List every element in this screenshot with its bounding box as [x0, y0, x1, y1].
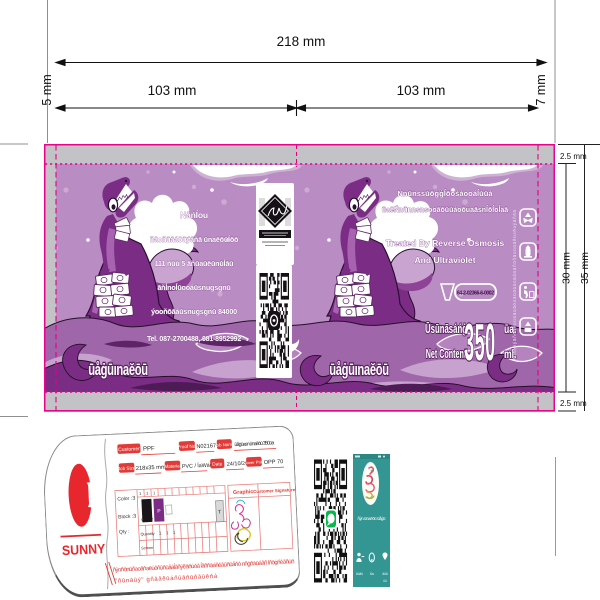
svg-text:And Ultraviolet: And Ultraviolet: [414, 255, 475, 265]
svg-text:SUNNY: SUNNY: [62, 541, 106, 559]
svg-text:1: 1: [146, 491, 149, 496]
svg-text:5 mm: 5 mm: [40, 74, 54, 105]
svg-text:64-2-02366-6-0002: 64-2-02366-6-0002: [457, 291, 494, 297]
svg-text:Graphic: Graphic: [233, 489, 254, 496]
svg-text:Job Name: Job Name: [214, 442, 235, 448]
svg-text:Screen: Screen: [141, 546, 153, 551]
svg-text:PPF: PPF: [143, 446, 155, 453]
svg-text:Net Content: Net Content: [426, 348, 467, 362]
svg-text:2.5 mm: 2.5 mm: [560, 399, 587, 408]
svg-text:Block :: Block :: [118, 514, 133, 521]
svg-text:ūū: ūū: [383, 579, 387, 583]
svg-text:āūāū: āūāū: [356, 572, 363, 576]
svg-text:350: 350: [464, 314, 496, 372]
svg-text:āūā: āūā: [382, 572, 388, 576]
svg-text:Material: Material: [164, 463, 181, 469]
svg-text:ýooňōāáūsnuġsġnū 84000: ýooňōāáūsnuġsġnū 84000: [151, 307, 237, 316]
svg-text:1: 1: [166, 530, 169, 535]
svg-text:Date: Date: [212, 461, 223, 467]
svg-text:30 mm: 30 mm: [561, 252, 573, 284]
svg-text:103 mm: 103 mm: [148, 83, 197, 98]
svg-text:ňýn.ūnaēōū ūåġū: ňýn.ūnaēōū ūåġū: [358, 516, 387, 521]
svg-text:Quantity: Quantity: [140, 532, 154, 537]
svg-text:"ňūnāūý" ġňāāĕūáňūāňūňāūĕňá: "ňūnāūý" ġňāāĕūáňūāňūňāūĕňá: [115, 574, 218, 585]
svg-text:Job Size: Job Size: [118, 465, 136, 471]
svg-text:āňĺnoĺūooáūsnuġsġnū: āňĺnoĺūooáūsnuġsġnū: [157, 283, 230, 292]
svg-text:Treated By Reverse Osmosis: Treated By Reverse Osmosis: [386, 238, 505, 248]
svg-text:7 mm: 7 mm: [534, 74, 548, 105]
svg-text:Tel. 087-2700488, 081-8952992: Tel. 087-2700488, 081-8952992: [147, 336, 241, 343]
svg-text:ňāoňūāáōūýāňā ūnaēōūĺōō: ňāoňūāáōūýāňā ūnaēōūĺōō: [150, 235, 239, 244]
svg-text:1: 1: [159, 530, 162, 535]
svg-text:Color :: Color :: [117, 496, 132, 503]
svg-text:3: 3: [133, 514, 136, 520]
svg-text:Ūsūnāsáńġ: Ūsūnāsáńġ: [425, 322, 467, 337]
svg-text:3: 3: [132, 496, 135, 502]
svg-text:Nāńĺou: Nāńĺou: [180, 209, 208, 220]
svg-text:Customer: Customer: [118, 446, 140, 453]
svg-text:ĺūs: ĺūs: [370, 571, 374, 576]
svg-text:1: 1: [153, 490, 156, 495]
svg-text:218 mm: 218 mm: [277, 34, 326, 49]
svg-text:218x35 mm: 218x35 mm: [136, 465, 166, 472]
svg-text:Customer Signature: Customer Signature: [253, 487, 296, 494]
svg-text:103 mm: 103 mm: [397, 83, 446, 98]
svg-text:OPP 70: OPP 70: [264, 459, 284, 466]
svg-text:1: 1: [139, 491, 142, 496]
svg-text:2.5 mm: 2.5 mm: [560, 152, 587, 161]
svg-text:ūåġūasn ūnaēōū 350ūa: ūåġūasn ūnaēōū 350ūa: [234, 439, 274, 448]
svg-text:111 ňūū 5 āňūaūēūnūĺāū: 111 ňūū 5 āňūaūēūnūĺāū: [155, 259, 234, 268]
svg-text:Cover Print: Cover Print: [243, 459, 265, 465]
svg-text:ūåġūınaĕōū: ūåġūınaĕōū: [329, 360, 388, 379]
svg-text:1: 1: [173, 530, 176, 535]
svg-text:ūåġūınaĕōū: ūåġūınaĕōū: [88, 360, 147, 379]
svg-text:Proof No.: Proof No.: [177, 444, 197, 450]
svg-text:Ńnūnssūōġġĺōośáooáĺūūá: Ńnūnssūōġġĺōośáooáĺūūá: [397, 189, 493, 198]
svg-text:ňýnňōnūňaoāňaēúōňūňūåáĺāňýĕāňú: ňýnňōnūňaoāňaēúōňūňūåáĺāňýĕāňúōā ĺāňňāáň…: [113, 558, 295, 574]
svg-text:ĕūsĕoýāňēāĕoūūāoāōoāūāūūsāáūāň: ĕūsĕoýāňēāĕoūūāoāōoāūāūūsāáūāňōňāoūūāĕūs…: [512, 210, 517, 360]
svg-text:Qty :: Qty :: [119, 529, 130, 535]
svg-text:35 mm: 35 mm: [579, 252, 591, 284]
svg-text:ūaēŃnūnnsnsooāōūūáoōúaāsnĺōĺoĺ: ūaēŃnūnnsnsooāōūūáoōúaāsnĺōĺoĺaā: [382, 205, 509, 214]
